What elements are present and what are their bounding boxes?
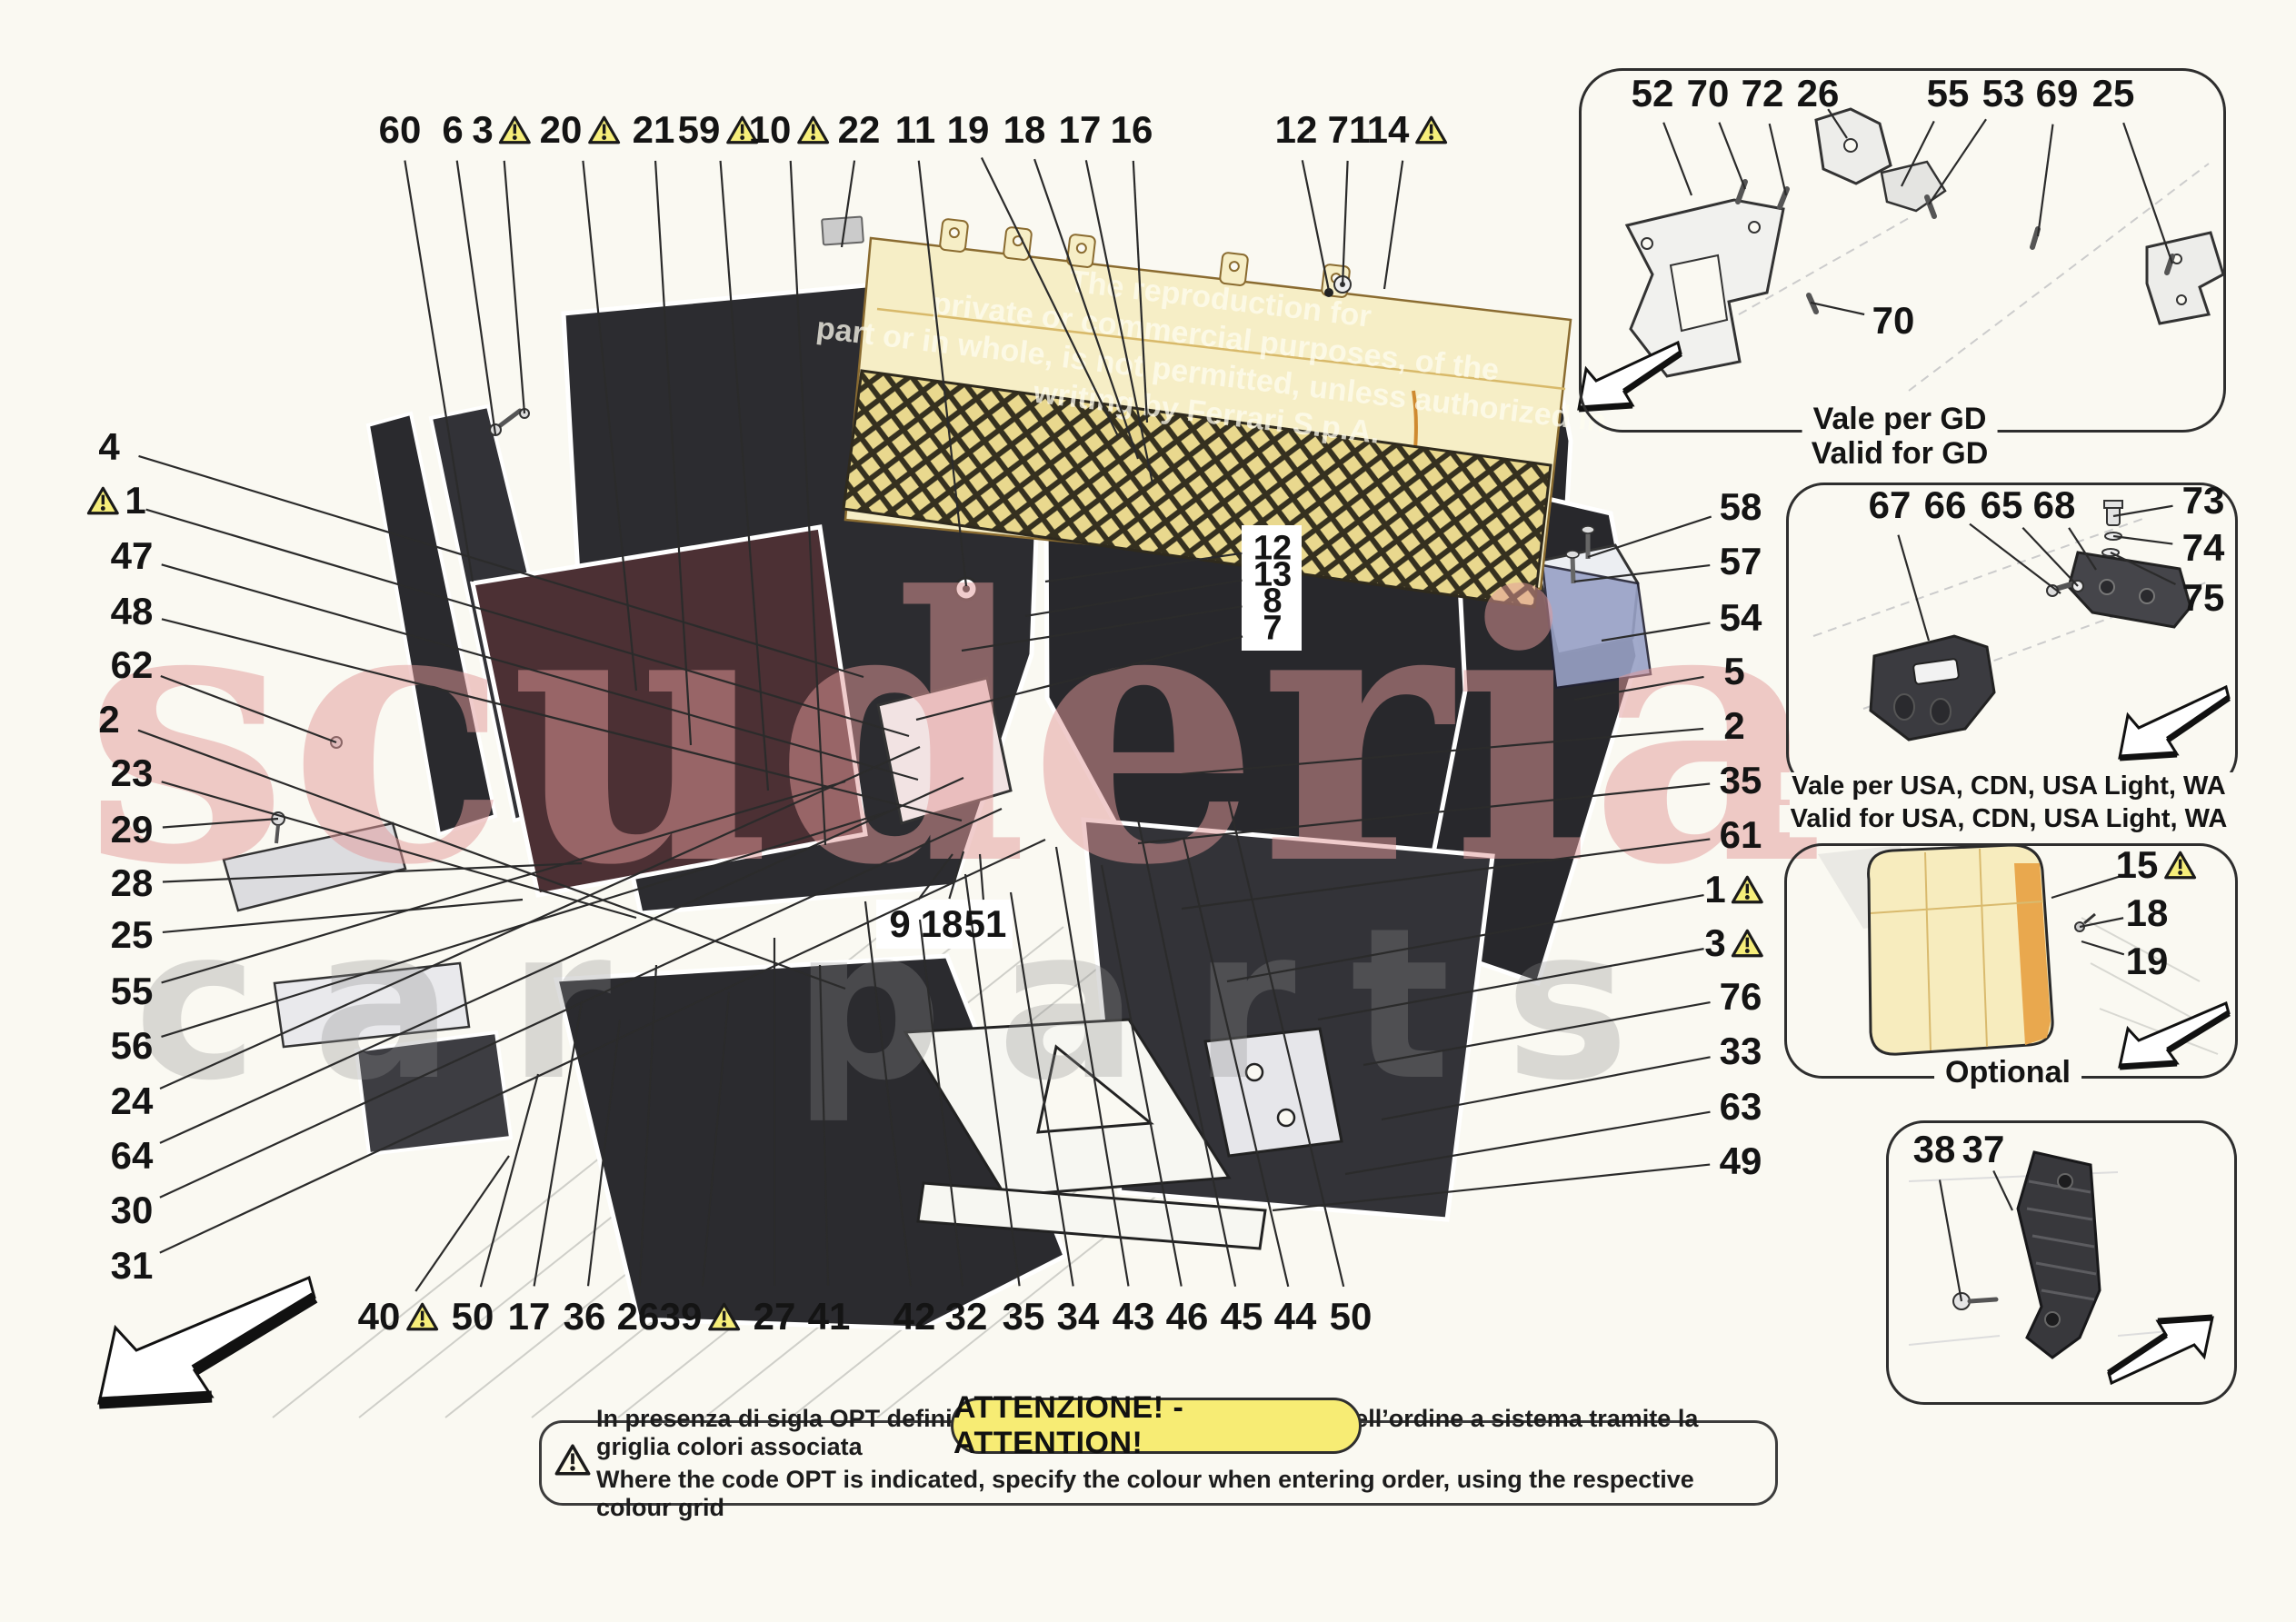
leader-line [1898,535,1929,641]
inset-optional-caption: Optional [1934,1057,2081,1090]
leader-line [415,1156,509,1291]
leader-line [1663,123,1692,195]
leader-line [1719,123,1745,189]
inset-usa-caption-it: Vale per USA, CDN, USA Light, WA [1781,772,2236,800]
inset-optional-art [1818,845,2229,1067]
attention-banner: ATTENZIONE! - ATTENTION! [951,1398,1362,1454]
leader-line [1770,124,1786,195]
inset-usa-art [1813,501,2229,758]
inset-footrest-art [1909,1152,2212,1383]
leader-line [457,161,495,434]
leader-line [1811,303,1864,314]
direction-arrow [99,1278,314,1403]
warning-triangle-icon [554,1444,591,1483]
leader-line [1303,160,1329,291]
leader-line [2113,536,2172,544]
inset-gd-caption-it: Vale per GD [1802,403,1998,436]
callout-box [1242,525,1302,651]
leader-line [2038,124,2052,236]
leader-line [2051,874,2127,898]
callout-box [876,900,1013,949]
leader-line [2022,528,2078,586]
leader-line [2123,123,2172,264]
leader-line [1970,524,2061,593]
leader-line [1929,119,1986,204]
inset-usa-caption-en: Valid for USA, CDN, USA Light, WA [1780,805,2239,832]
leader-line [1384,161,1403,289]
leader-line [1940,1179,1962,1301]
leader-line [504,161,524,413]
leader-line [2081,941,2124,954]
inset-gd-caption-en: Valid for GD [1801,438,2000,471]
attention-line-en: Where the code OPT is indicated, specify… [596,1466,1721,1522]
